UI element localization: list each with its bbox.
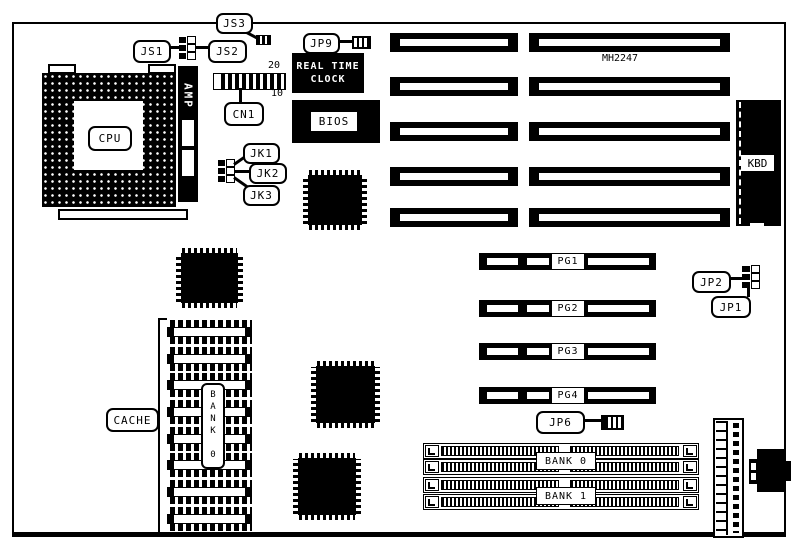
jk2-lead [234, 170, 249, 173]
socket-tab [148, 64, 176, 74]
cn1-callout: CN1 [224, 102, 264, 126]
amp-slot [182, 150, 194, 176]
simm-latch [425, 479, 439, 491]
isa-slot [390, 208, 518, 227]
pg3-label: PG3 [552, 344, 584, 359]
slot-stripe [527, 348, 549, 355]
jp6-label: JP6 [549, 417, 572, 428]
cn1-label: CN1 [233, 109, 256, 120]
cache-chip [167, 480, 252, 504]
power-pin-column [733, 423, 739, 533]
js2-label: JS2 [216, 46, 239, 57]
jk1-label: JK1 [250, 148, 273, 159]
simm-latch [683, 461, 697, 473]
isa-slot [529, 167, 730, 186]
js2-callout: JS2 [208, 40, 247, 63]
js1-label: JS1 [141, 46, 164, 57]
slot-stripe [487, 392, 518, 399]
js2-lead [195, 46, 209, 49]
cn1-pin10-label: 10 [271, 89, 283, 99]
din-tab [751, 473, 756, 480]
isa-slot [529, 122, 730, 141]
isa-slot [390, 33, 518, 52]
js-jumper-block [179, 37, 195, 59]
socket-tab [48, 64, 76, 74]
cache-bank-vertical-label: BANK 0 [201, 383, 225, 469]
simm-latch [425, 496, 439, 508]
js1-callout: JS1 [133, 40, 171, 63]
jp9-label: JP9 [310, 38, 333, 49]
simm-latch [425, 445, 439, 457]
bios-label: BIOS [319, 115, 350, 128]
cn1-lead [239, 88, 242, 103]
slot-stripe [588, 348, 649, 355]
simm-latch [683, 496, 697, 508]
kbd-label-box: KBD [741, 155, 774, 171]
jk2-callout: JK2 [249, 163, 287, 184]
cache-chip [167, 507, 252, 531]
isa-slot [529, 77, 730, 96]
slot-stripe [527, 392, 549, 399]
cpu-callout: CPU [88, 126, 132, 151]
rtc-label-line1: REAL TIME [296, 60, 359, 74]
kbd-label: KBD [748, 157, 768, 170]
chipset-label: MH2247 [595, 53, 645, 64]
qfp-chip [311, 361, 380, 428]
cache-label: CACHE [113, 415, 151, 426]
jp-jumper-block [742, 266, 759, 288]
cpu-label: CPU [99, 133, 122, 144]
jp9-callout: JP9 [303, 33, 340, 54]
jp1-lead [747, 288, 750, 297]
isa-slot [390, 122, 518, 141]
jp6-callout: JP6 [536, 411, 585, 434]
qfp-chip [303, 170, 367, 230]
cn1-pin20-label: 20 [268, 61, 280, 71]
pg-slot: PG4 [479, 387, 656, 404]
js3-label: JS3 [223, 18, 246, 29]
cache-chip [167, 320, 252, 344]
jk3-callout: JK3 [243, 185, 280, 206]
kbd-connector: KBD [736, 100, 781, 226]
slot-stripe [527, 258, 549, 265]
cache-chip [167, 347, 252, 371]
isa-slot [529, 33, 730, 52]
power-connector [713, 418, 744, 538]
motherboard-diagram: CPU AMP JS1 JS2 JS3 JP9 20 10 CN1 REAL T… [0, 0, 791, 544]
pg1-label: PG1 [552, 254, 584, 269]
pg-slot: PG3 [479, 343, 656, 360]
cache-bracket [158, 318, 167, 536]
amp-label: AMP [178, 70, 198, 122]
jk-jumper-block [218, 160, 234, 182]
kbd-notch [750, 223, 764, 226]
jp1-label: JP1 [720, 302, 743, 313]
amp-slot [182, 120, 194, 146]
din-connector [757, 449, 784, 492]
qfp-chip [176, 248, 243, 308]
cache-callout: CACHE [106, 408, 159, 432]
power-pin-column [716, 421, 728, 535]
jp2-label: JP2 [700, 277, 723, 288]
pg-slot: PG2 [479, 300, 656, 317]
slot-stripe [588, 305, 649, 312]
qfp-chip [293, 453, 361, 520]
rtc-chip: REAL TIME CLOCK [292, 53, 364, 93]
simm-latch [425, 461, 439, 473]
simm-latch [683, 479, 697, 491]
simm-latch [683, 445, 697, 457]
din-tab [751, 463, 756, 470]
bank1-label: BANK 1 [536, 487, 596, 505]
slot-stripe [588, 258, 649, 265]
pg-slot: PG1 [479, 253, 656, 270]
socket-lever-bar [58, 209, 188, 220]
jp6-jumper [601, 415, 624, 430]
bios-chip: BIOS [292, 100, 380, 143]
jp1-callout: JP1 [711, 296, 751, 318]
isa-slot [390, 167, 518, 186]
jk1-callout: JK1 [243, 143, 280, 164]
pg4-label: PG4 [552, 388, 584, 403]
slot-stripe [487, 348, 518, 355]
jp9-jumper [352, 36, 371, 49]
slot-stripe [588, 392, 649, 399]
jk3-label: JK3 [250, 190, 273, 201]
slot-stripe [487, 258, 518, 265]
jp2-callout: JP2 [692, 271, 731, 293]
slot-stripe [487, 305, 518, 312]
din-nub [784, 461, 791, 481]
isa-slot [529, 208, 730, 227]
isa-slot [390, 77, 518, 96]
js3-callout: JS3 [216, 13, 253, 34]
jk2-label: JK2 [257, 168, 280, 179]
slot-stripe [527, 305, 549, 312]
rtc-label-line2: CLOCK [310, 73, 345, 87]
pg2-label: PG2 [552, 301, 584, 316]
bios-label-box: BIOS [311, 112, 357, 131]
bank0-label: BANK 0 [536, 452, 596, 470]
